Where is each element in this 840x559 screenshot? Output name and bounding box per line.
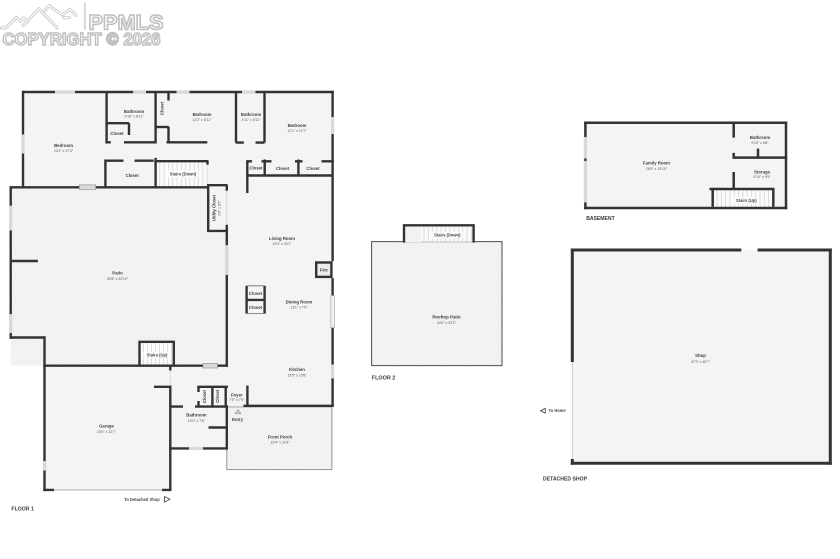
svg-text:Rooftop Patio: Rooftop Patio: [432, 314, 461, 319]
svg-text:To Detached Shop: To Detached Shop: [124, 497, 160, 502]
svg-text:DETACHED SHOP: DETACHED SHOP: [543, 476, 587, 482]
svg-text:Bathroom: Bathroom: [124, 109, 144, 114]
svg-text:Shop: Shop: [695, 353, 706, 358]
svg-text:4'11" x 8'11": 4'11" x 8'11": [242, 118, 261, 122]
svg-text:Closet: Closet: [249, 291, 263, 296]
svg-text:Bathroom: Bathroom: [241, 112, 261, 117]
svg-text:Storage: Storage: [754, 170, 771, 175]
svg-text:To Home: To Home: [549, 408, 567, 413]
svg-text:Fire: Fire: [320, 267, 328, 272]
svg-text:Foyer: Foyer: [231, 393, 243, 398]
svg-text:19'4" x 11'9": 19'4" x 11'9": [271, 441, 291, 445]
svg-text:13'1" x 7'5": 13'1" x 7'5": [290, 306, 308, 310]
svg-text:12'2" x 8'11": 12'2" x 8'11": [193, 118, 213, 122]
svg-text:Family Room: Family Room: [643, 160, 670, 165]
svg-text:Closet: Closet: [249, 166, 263, 171]
svg-text:FLOOR 2: FLOOR 2: [372, 376, 396, 382]
svg-text:Closet: Closet: [110, 131, 124, 136]
svg-text:Bedroom: Bedroom: [288, 123, 307, 128]
svg-text:28'9" x 15'10": 28'9" x 15'10": [646, 167, 668, 171]
svg-text:FLOOR 1: FLOOR 1: [11, 507, 34, 513]
svg-text:Living Room: Living Room: [269, 236, 295, 241]
svg-text:Closet: Closet: [249, 305, 263, 310]
svg-text:Utility Closet: Utility Closet: [212, 194, 217, 221]
svg-text:Bathroom: Bathroom: [186, 412, 206, 417]
svg-text:24'1" x 17'4": 24'1" x 17'4": [54, 149, 74, 153]
svg-text:Closet: Closet: [276, 166, 290, 171]
svg-text:Stairs (Up): Stairs (Up): [147, 353, 168, 358]
svg-text:23'0" x 22'7": 23'0" x 22'7": [97, 430, 117, 434]
svg-text:BASEMENT: BASEMENT: [586, 216, 615, 222]
svg-text:Patio: Patio: [112, 270, 123, 275]
svg-text:Bedroom: Bedroom: [193, 112, 212, 117]
svg-text:Closet: Closet: [126, 173, 140, 178]
svg-text:COPYRIGHT © 2026: COPYRIGHT © 2026: [3, 29, 161, 49]
svg-text:Stairs (Up): Stairs (Up): [736, 198, 757, 203]
svg-text:9'10" x 6'6": 9'10" x 6'6": [751, 141, 769, 145]
svg-text:12'1" x 12'7": 12'1" x 12'7": [287, 129, 307, 133]
svg-text:Closet: Closet: [159, 101, 164, 115]
svg-text:9'10" x 9'9": 9'10" x 9'9": [753, 175, 771, 179]
svg-text:7'5" x 7'9": 7'5" x 7'9": [229, 398, 245, 402]
svg-text:Stairs (Down): Stairs (Down): [170, 172, 197, 177]
svg-text:Kitchen: Kitchen: [289, 367, 305, 372]
svg-text:15'5" x 15'8": 15'5" x 15'8": [287, 374, 307, 378]
svg-text:34'0" x 33'3": 34'0" x 33'3": [437, 321, 457, 325]
svg-text:3'8" x 8'5": 3'8" x 8'5": [218, 200, 222, 216]
svg-text:Dining Room: Dining Room: [286, 299, 313, 304]
svg-text:9'10" x 8'11": 9'10" x 8'11": [125, 115, 145, 119]
svg-text:Closet: Closet: [202, 389, 207, 403]
svg-text:Garage: Garage: [99, 424, 114, 429]
svg-text:Closet: Closet: [306, 166, 320, 171]
svg-text:Bedroom: Bedroom: [54, 143, 73, 148]
svg-text:Front Porch: Front Porch: [268, 435, 293, 440]
svg-text:Stairs (Down): Stairs (Down): [434, 233, 461, 238]
svg-text:Bathroom: Bathroom: [750, 135, 770, 140]
svg-text:47'9" x 45'7": 47'9" x 45'7": [691, 360, 711, 364]
svg-text:19'4" x 20'1": 19'4" x 20'1": [272, 242, 292, 246]
svg-text:39'8" x 32'10": 39'8" x 32'10": [107, 277, 129, 281]
svg-text:Closet: Closet: [215, 389, 220, 403]
svg-text:Entry: Entry: [232, 417, 244, 422]
svg-text:10'0" x 7'6": 10'0" x 7'6": [188, 419, 206, 423]
